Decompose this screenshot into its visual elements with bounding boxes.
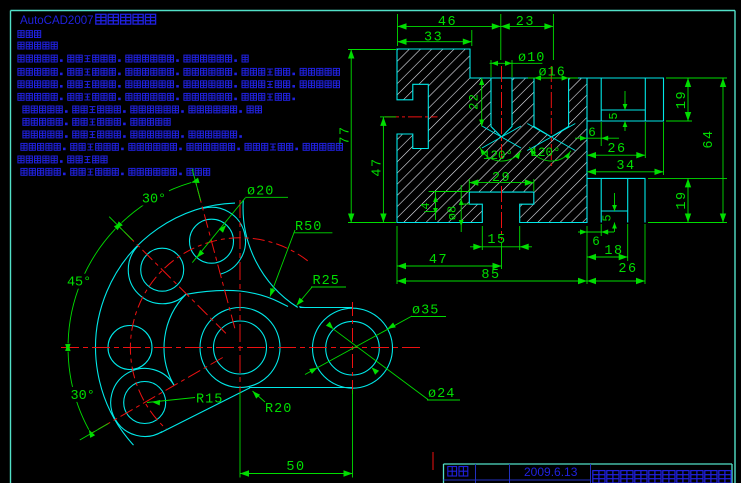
svg-text:2009.6.13: 2009.6.13 — [524, 465, 578, 479]
svg-text:30°: 30° — [142, 193, 166, 208]
svg-text:19: 19 — [675, 190, 690, 209]
svg-text:ø16: ø16 — [539, 66, 566, 81]
svg-text:45°: 45° — [67, 276, 91, 291]
svg-text:18: 18 — [604, 244, 623, 259]
svg-text:85: 85 — [481, 268, 500, 283]
svg-text:23: 23 — [516, 15, 535, 30]
svg-text:120°: 120° — [483, 149, 513, 163]
svg-text:46: 46 — [438, 15, 457, 30]
svg-text:22: 22 — [468, 93, 482, 110]
svg-text:6: 6 — [592, 235, 600, 249]
svg-text:15: 15 — [487, 233, 506, 248]
svg-text:ø20: ø20 — [247, 185, 274, 200]
svg-text:AutoCAD2007: AutoCAD2007 — [20, 15, 94, 27]
svg-text:30°: 30° — [71, 389, 95, 404]
svg-text:120°: 120° — [530, 146, 560, 160]
svg-text:77: 77 — [339, 125, 354, 144]
svg-text:6: 6 — [588, 126, 596, 140]
svg-text:R15: R15 — [196, 393, 223, 408]
svg-text:29: 29 — [492, 171, 511, 186]
svg-text:26: 26 — [618, 262, 637, 277]
svg-text:5: 5 — [601, 214, 615, 221]
svg-text:R20: R20 — [265, 402, 292, 417]
svg-text:19: 19 — [675, 90, 690, 109]
svg-text:4: 4 — [419, 202, 433, 209]
svg-text:64: 64 — [702, 129, 717, 148]
svg-text:47: 47 — [429, 253, 448, 268]
svg-text:ø8: ø8 — [446, 206, 460, 220]
svg-text:50: 50 — [286, 460, 305, 475]
svg-text:5: 5 — [607, 112, 621, 119]
svg-text:47: 47 — [371, 157, 386, 176]
svg-text:R25: R25 — [313, 274, 340, 289]
svg-text:26: 26 — [607, 142, 626, 157]
svg-text:R50: R50 — [295, 220, 322, 235]
svg-text:34: 34 — [616, 159, 635, 174]
svg-text:ø35: ø35 — [412, 304, 439, 319]
svg-text:33: 33 — [424, 31, 443, 46]
svg-text:ø10: ø10 — [518, 51, 545, 66]
svg-text:ø24: ø24 — [428, 387, 455, 402]
